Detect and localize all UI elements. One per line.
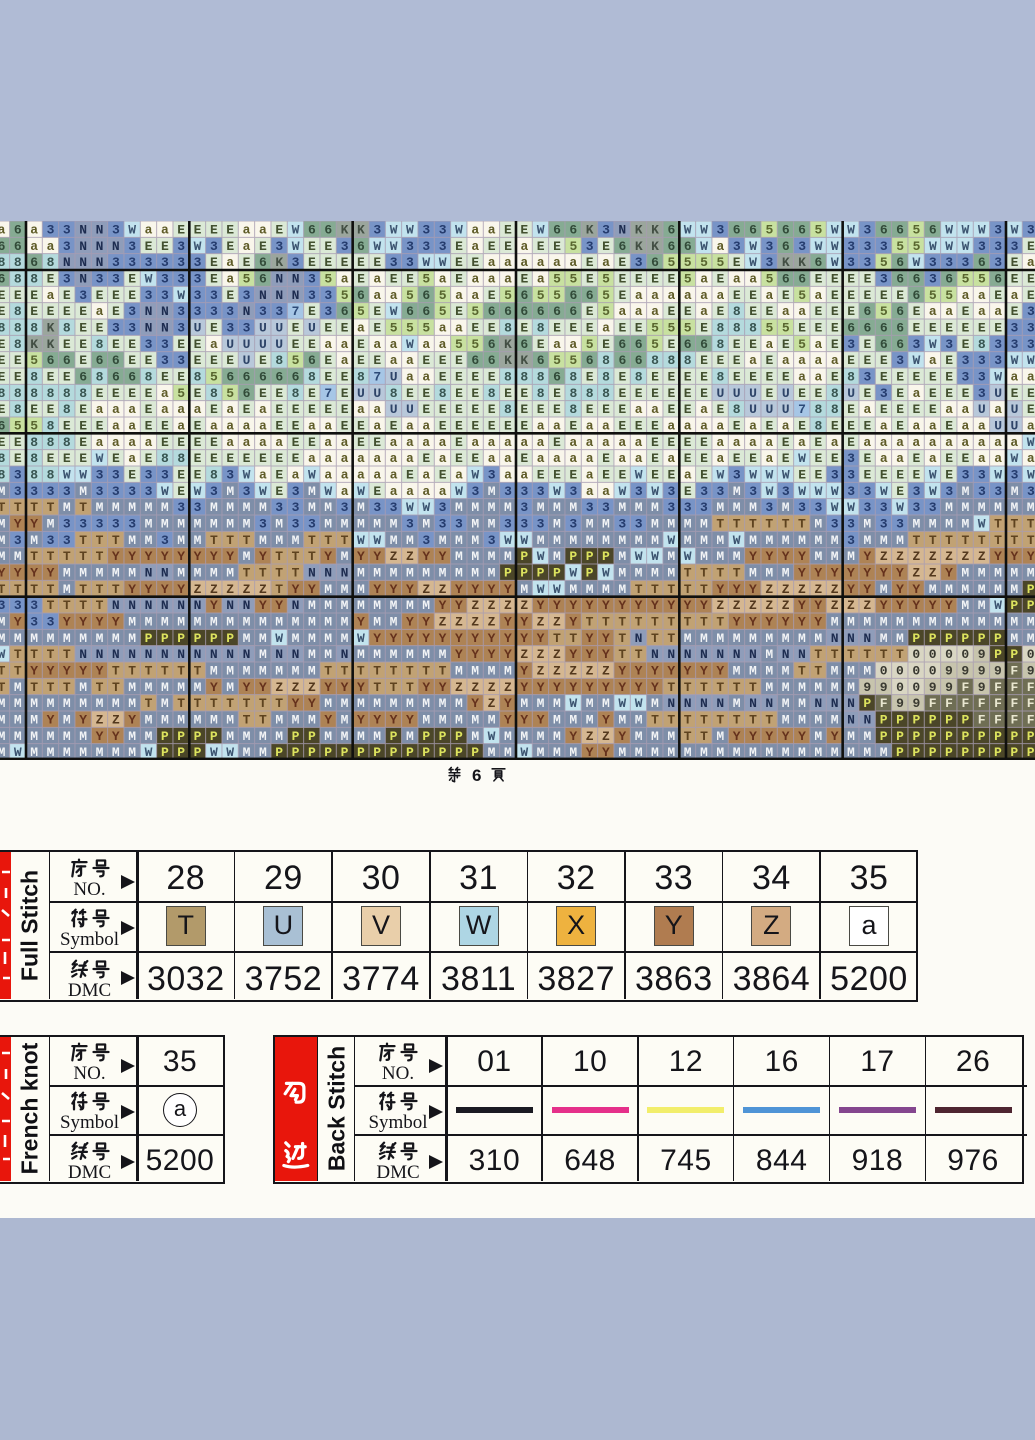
svg-text:888K8EE33NN3UE33UUEUEEaE555aaE: 888K8EE33NN3UE33UUEUEEaE555aaEE8E8EEEaEE… bbox=[0, 321, 1035, 336]
svg-text:EE566E66EE33EEEUE856EaEEaaEEE6: EE566E66EE33EEEUE856EaEEaaEEE66KK6556866… bbox=[0, 353, 1035, 368]
svg-text:6558EEEaaEEaEaaaaEEaaEEaEaaEEE: 6558EEEaaEEaEaaaaEEaaEEaEaaEEEEEEaaEaaEE… bbox=[0, 419, 1035, 434]
svg-text:TTTTMTTTYYYYZZZZZTYYMMMYYYZZYY: TTTTMTTTYYYYZZZZZTYYMMMYYYZZYYYYMWWMMMMT… bbox=[0, 582, 1035, 597]
svg-text:333TTTTNNNNNNYNNYYNMMMMMMMMYYZ: 333TTTTNNNNNNYNNYYNMMMMMMMMYYZZZZYYYYYYY… bbox=[0, 598, 1035, 613]
svg-text:E8EEEEaE3NN3333N337E365EW665E5: E8EEEEaE3NN3333N337E365EW665E5666666E5aa… bbox=[0, 304, 1035, 319]
svg-text:MY33YYYYMMMMMMMMMMMMMMYMMYYZZZ: MY33YYYYMMMMMMMMMMMMMMYMMYYZZZZYYZZYTTTT… bbox=[0, 615, 1035, 630]
svg-text:8868NNN333333EaE6K3EEEEE33WWEE: 8868NNN333333EaE6K3EEEEE33WWEEaaaaaaEaE3… bbox=[0, 255, 1035, 270]
svg-text:MMMMMMMMMTMTTTTTTTYYMMMMMMMMMY: MMMMMMMMMTMTTTTTTTYYMMMMMMMMMYZYMMMWMMWW… bbox=[0, 696, 1035, 711]
svg-text:888888EEEEa5E856EE8E7EUU8EE8EE: 888888EEEEa5E856EE8E7EUU8EE8EE8EE8E888EE… bbox=[0, 386, 1035, 401]
svg-text:MMMYMYZZYMMMMMMTTMMMYMYYYYMMMM: MMMYMYZZYMMMMMMTTMMMYMYYYYMMMMMYYYMMMYMM… bbox=[0, 713, 1035, 728]
svg-text:MMTTTTTYYYYYYYYMYTTTYMYYZZYYMM: MMTTTTTYYYYYYYYMYTTTYMYYZZYYMMMMPWMPPPMW… bbox=[0, 549, 1035, 564]
svg-text:E8EE8EaaaEaaaEaEaEEEEEaaUUEEEE: E8EE8EaaaEaaaEaEaEEEEEaaUUEEEEE8EEE8EEEa… bbox=[0, 402, 1035, 417]
svg-text:TTTTMTMMMMM33MMMM33MM3M33WW3MM: TTTTMTMMMMM33MMMM33MM3M33WW3MMMM3MMM33MM… bbox=[0, 500, 1035, 515]
svg-text:MMMMMMYYMMPPPPMMMMPPMMMMPMPPPM: MMMMMMYYMMPPPPMMMMPPMMMMPMPPPMWMMMMYZZYM… bbox=[0, 729, 1035, 744]
svg-text:TTYYYYYTTTTTTMMMMMMMTTTTTTTTMM: TTYYYYYTTTTTTMMMMMMMTTTTTTTTMMMMYZZZZZYY… bbox=[0, 664, 1035, 679]
svg-text:a6a33NN3WaaEEEEaaEW66KK3WW33Wa: a6a33NN3WaaEEEEaaEW66KK3WW33WaaEEW66K3NK… bbox=[0, 223, 1035, 238]
svg-text:TMTTTMTTMMMMMYMYYZZZYYYTTTYYZZ: TMTTTMTTMMMMMYMYYZZZYYYTTTYYZZZZYYYYYYYY… bbox=[0, 680, 1035, 695]
svg-text:8E8EEEWEaE88EEEEEEEaaaaaaaEaEE: 8E8EEEWEaE88EEEEEEEaaaaaaaEaEEaaEaaaaEaa… bbox=[0, 451, 1035, 466]
svg-text:YYYYMMMMMNNMMMMTTTTNNNMMMMMMMM: YYYYMMMMMNNMMMMTTTTNNNMMMMMMMMMPPPPWPWMM… bbox=[0, 566, 1035, 581]
svg-text:EE8EE68668EE85666668EE87UaaEEE: EE8EE68668EE85666668EE87UaaEEEE88868E8E8… bbox=[0, 370, 1035, 385]
svg-text:EEEaE3EEE33W33E3NNN3356aa565aa: EEEaE3EEE33W33E3NNN3356aa565aaE5655665Ea… bbox=[0, 288, 1035, 303]
svg-text:M3333M3333WEW3M3WE3MWaWEaaaaW3: M3333M3333WEW3M3WE3MWaWEaaaaW3M333W3aaW3… bbox=[0, 484, 1035, 499]
svg-text:MYYM33333MMMMMMM3M33MMMMM3M33M: MYYM33333MMMMMMM3M33MMMMM3M33MM333M3MM33… bbox=[0, 517, 1035, 532]
svg-text:M3M33TTTMM3MMTTTMMMTTTWWMM3MMM: M3M33TTTMM3MMTTTMMMTTTWWMM3MMM3WWMMMMMMM… bbox=[0, 533, 1035, 548]
svg-text:E8KKEE8EE33EEaUUUUEEaaEaaWaa55: E8KKEE8EE33EEaUUUUEEaaEaaWaa556K6Eaa5E66… bbox=[0, 337, 1035, 352]
svg-text:8388WW33E33EE83WaEaWaaaaaEaEaW: 8388WW33E33EE83WaEaWaaaaaEaEaW3aaEEEaEEW… bbox=[0, 468, 1035, 483]
svg-text:WTTTTNNNNNNNNNNNMNNMMNMMMMMMYY: WTTTTNNNNNNNNNNNMNNMMNMMMMMMYYYYZZZYYYTT… bbox=[0, 647, 1035, 662]
svg-text:MMMMMMMMMPPPPPPMMWMMMMWYYYYYYY: MMMMMMMMMPPPPPPMMWMMMMWYYYYYYYYYYYTTYYTN… bbox=[0, 631, 1035, 646]
svg-text:EE888EaaaaEEEEaaaaEEaaEEaaaaEa: EE888EaaaaEEEEaaaaEEaaEEaaaaEaaaaaEaaaaa… bbox=[0, 435, 1035, 450]
svg-text:66aa3NNN3EE3W3EaE3WEE36WW333Ea: 66aa3NNN3EE3W3EaE3WEE36WW333EaEEaEE53E6K… bbox=[0, 239, 1035, 254]
svg-text:688E3N33EW333Ea56NN35aEaEE5aEa: 688E3N33EW333Ea56NN35aEaEE5aEaaaEa55E5EE… bbox=[0, 272, 1035, 287]
